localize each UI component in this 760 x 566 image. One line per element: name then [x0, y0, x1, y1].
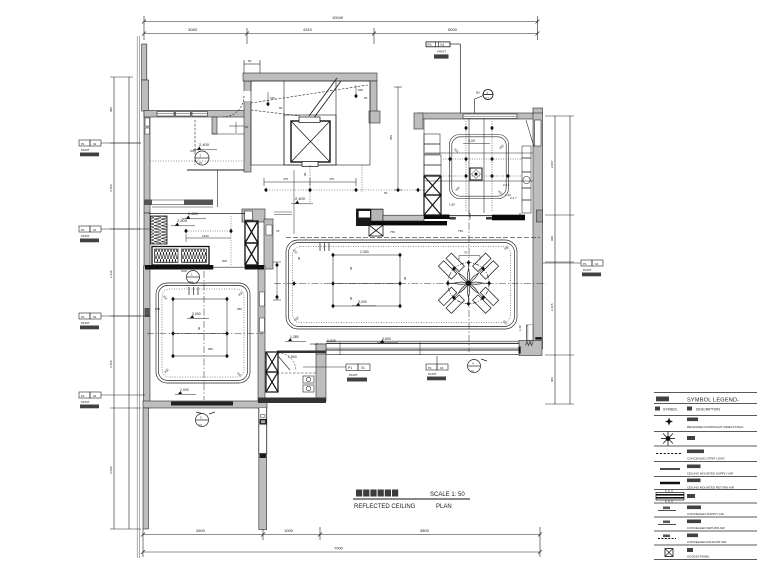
svg-text:10040: 10040 [332, 15, 344, 20]
svg-text:P1: P1 [81, 315, 85, 319]
svg-text:1,80: 1,80 [449, 203, 455, 207]
svg-text:90: 90 [349, 296, 353, 300]
svg-text:56: 56 [279, 106, 283, 110]
svg-text:0,920: 0,920 [327, 339, 336, 343]
svg-text:90: 90 [349, 266, 353, 270]
svg-text:3083: 3083 [188, 27, 198, 32]
svg-text:P1: P1 [348, 366, 352, 370]
svg-text:B0: B0 [476, 91, 480, 95]
svg-text:90: 90 [297, 256, 301, 260]
svg-text:01: 01 [93, 228, 97, 232]
svg-text:CONCEALED RETURN AIR: CONCEALED RETURN AIR [687, 526, 726, 530]
svg-text:980: 980 [109, 107, 113, 112]
svg-text:70: 70 [464, 251, 468, 255]
svg-text:750: 750 [458, 229, 463, 233]
svg-text:ACCESS PANEL: ACCESS PANEL [687, 555, 710, 559]
svg-text:2600: 2600 [196, 528, 206, 533]
svg-text:PAINT: PAINT [81, 148, 90, 152]
svg-text:3,600: 3,600 [382, 337, 391, 341]
svg-text:545: 545 [270, 96, 275, 100]
svg-text:1,60: 1,60 [518, 325, 522, 331]
svg-text:2,300: 2,300 [360, 250, 369, 254]
svg-text:475: 475 [283, 177, 288, 181]
svg-text:CONCEALED SUPPLY AIR: CONCEALED SUPPLY AIR [687, 512, 725, 516]
svg-text:PAINT: PAINT [438, 50, 447, 54]
svg-text:56: 56 [364, 96, 368, 100]
svg-text:2,400: 2,400 [199, 142, 210, 147]
svg-text:3,600: 3,600 [109, 466, 113, 474]
svg-text:3,00: 3,00 [468, 139, 475, 143]
svg-text:01: 01 [93, 315, 97, 319]
svg-text:2,415: 2,415 [550, 303, 554, 311]
svg-text:P1: P1 [81, 394, 85, 398]
svg-text:10: 10 [199, 161, 203, 165]
svg-text:2,400: 2,400 [295, 196, 306, 201]
svg-text:950: 950 [155, 307, 160, 311]
svg-text:90: 90 [403, 276, 407, 280]
svg-text:4310: 4310 [303, 27, 313, 32]
svg-text:950: 950 [208, 347, 213, 351]
svg-text:CEILING MOUNTED RETURN AIR: CEILING MOUNTED RETURN AIR [687, 485, 735, 489]
svg-text:2,4 1: 2,4 1 [503, 183, 510, 187]
svg-text:950: 950 [237, 307, 242, 311]
svg-text:PAINT: PAINT [81, 321, 90, 325]
svg-text:P1: P1 [428, 43, 432, 47]
svg-text:P1: P1 [583, 262, 587, 266]
svg-text:P1: P1 [81, 228, 85, 232]
svg-text:CEILING MOUNTED SUPPLY AIR: CEILING MOUNTED SUPPLY AIR [687, 472, 734, 476]
svg-text:SCALE 1: 50: SCALE 1: 50 [430, 492, 465, 498]
svg-text:3,150: 3,150 [109, 184, 113, 192]
svg-text:3,000: 3,000 [192, 312, 201, 316]
svg-text:2,4 7: 2,4 7 [510, 196, 517, 200]
svg-text:01: 01 [93, 394, 97, 398]
svg-text:PAINT: PAINT [81, 234, 90, 238]
svg-text:2,430: 2,430 [109, 270, 113, 278]
svg-text:0,920: 0,920 [310, 342, 318, 346]
svg-text:1,000: 1,000 [180, 388, 189, 392]
svg-text:SYMBOL: SYMBOL [663, 408, 678, 412]
svg-text:REFLECTED CEILING: REFLECTED CEILING [354, 504, 416, 510]
svg-text:600: 600 [222, 259, 227, 263]
svg-text:SYMBOL LEGEND-: SYMBOL LEGEND- [687, 398, 739, 404]
svg-text:2,800: 2,800 [177, 218, 188, 223]
svg-text:60: 60 [245, 125, 249, 129]
svg-text:01: 01 [440, 366, 444, 370]
svg-text:984: 984 [550, 377, 554, 382]
svg-text:90: 90 [197, 326, 201, 330]
svg-text:01: 01 [595, 262, 599, 266]
svg-text:E0: E0 [190, 280, 194, 284]
svg-text:PAINT: PAINT [81, 400, 90, 404]
svg-text:RECESSED DOWNLIGHT DIRECTIONAL: RECESSED DOWNLIGHT DIRECTIONAL [687, 425, 744, 429]
svg-text:1,380: 1,380 [290, 335, 299, 339]
svg-text:PAINT: PAINT [349, 373, 358, 377]
svg-text:948: 948 [550, 236, 554, 241]
svg-text:2,007: 2,007 [550, 160, 554, 168]
svg-text:E2: E2 [486, 97, 490, 101]
svg-text:3,460: 3,460 [109, 360, 113, 368]
svg-text:3800: 3800 [420, 528, 430, 533]
svg-text:545: 545 [358, 88, 363, 92]
svg-text:PLAN: PLAN [436, 504, 452, 510]
svg-text:3,000: 3,000 [358, 300, 367, 304]
svg-text:PAINT: PAINT [583, 268, 592, 272]
svg-text:CONCEALED EXHAUST AIR: CONCEALED EXHAUST AIR [687, 540, 727, 544]
svg-text:5000: 5000 [448, 27, 458, 32]
svg-text:1000: 1000 [284, 528, 294, 533]
svg-text:1400: 1400 [202, 234, 209, 238]
svg-text:10: 10 [199, 423, 203, 427]
svg-text:PAINT: PAINT [428, 372, 437, 376]
svg-text:50: 50 [248, 59, 252, 63]
svg-text:475: 475 [329, 177, 334, 181]
svg-text:950: 950 [389, 135, 393, 140]
svg-text:CONCEALED STRIP LIGHT: CONCEALED STRIP LIGHT [687, 457, 725, 461]
svg-text:01: 01 [441, 43, 445, 47]
svg-text:90: 90 [303, 172, 307, 176]
svg-text:P1: P1 [81, 142, 85, 146]
svg-text:DESCRIPTION: DESCRIPTION [696, 408, 720, 412]
svg-text:7#: 7# [276, 229, 280, 233]
svg-text:56: 56 [384, 191, 388, 195]
svg-text:2,40: 2,40 [505, 193, 511, 197]
svg-text:10: 10 [471, 369, 475, 373]
svg-text:P1: P1 [428, 366, 432, 370]
svg-text:750: 750 [390, 230, 395, 234]
svg-text:02: 02 [93, 142, 97, 146]
svg-text:7000: 7000 [334, 546, 344, 551]
svg-text:01: 01 [361, 366, 365, 370]
svg-text:1,800: 1,800 [288, 355, 297, 359]
